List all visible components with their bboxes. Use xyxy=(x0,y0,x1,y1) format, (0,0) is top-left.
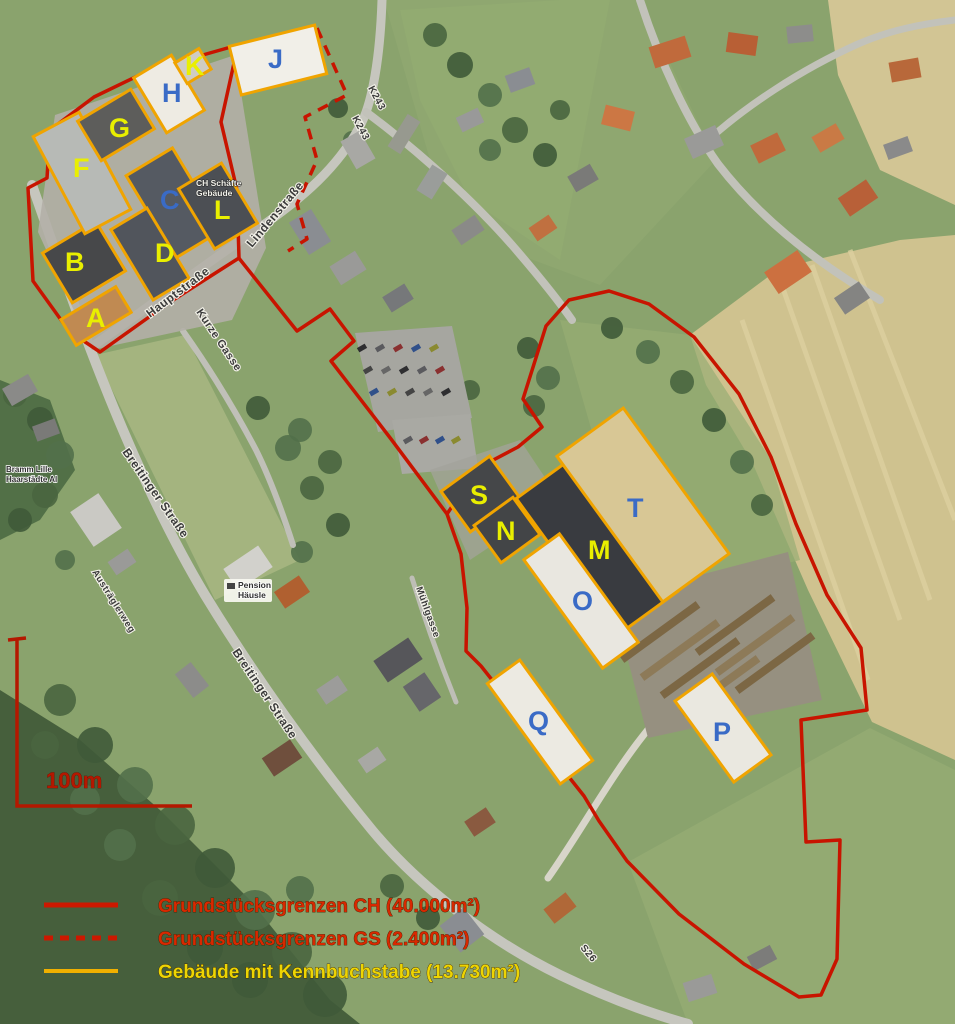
tree xyxy=(300,476,324,500)
poi-text: Bramm Lille xyxy=(6,465,52,474)
tree xyxy=(77,727,113,763)
tree xyxy=(246,396,270,420)
legend-label-ch: Grundstücksgrenzen CH (40.000m²) xyxy=(158,896,480,917)
tree xyxy=(55,550,75,570)
tree xyxy=(8,508,32,532)
tree xyxy=(536,366,560,390)
building-label-Q: Q xyxy=(528,706,549,736)
legend-label-gs: Grundstücksgrenzen GS (2.400m²) xyxy=(158,929,469,950)
poi-text: Haarstädte Al xyxy=(6,475,57,484)
scale-label: 100m xyxy=(46,768,102,793)
building-label-T: T xyxy=(627,493,644,523)
tree xyxy=(533,143,557,167)
tree xyxy=(155,805,195,845)
tree xyxy=(44,684,76,716)
aerial-map: ABCDFGHJKLSNMOTQP 100m HauptstraßeLinden… xyxy=(0,0,955,1024)
poi-text: Pension xyxy=(238,580,271,590)
building-label-F: F xyxy=(73,153,90,183)
house-roof xyxy=(786,24,814,44)
building-label-B: B xyxy=(65,247,85,277)
tree xyxy=(104,829,136,861)
tree xyxy=(550,100,570,120)
building-label-J: J xyxy=(268,44,283,74)
tree xyxy=(479,139,501,161)
legend-label-buildings: Gebäude mit Kennbuchstabe (13.730m²) xyxy=(158,962,520,983)
building-label-H: H xyxy=(162,78,182,108)
building-label-A: A xyxy=(86,303,106,333)
tree xyxy=(751,494,773,516)
tree xyxy=(380,874,404,898)
building-label-C: C xyxy=(160,185,180,215)
building-label-K: K xyxy=(185,51,205,81)
tree xyxy=(31,731,59,759)
building-label-L: L xyxy=(214,195,231,225)
house-roof xyxy=(726,32,758,56)
building-label-S: S xyxy=(470,480,488,510)
tree xyxy=(32,482,58,508)
tree xyxy=(447,52,473,78)
tree xyxy=(636,340,660,364)
poi-label: Bramm LilleHaarstädte Al xyxy=(6,465,57,484)
tree xyxy=(702,408,726,432)
tree xyxy=(478,83,502,107)
building-label-G: G xyxy=(109,113,130,143)
tree xyxy=(423,23,447,47)
tree xyxy=(288,418,312,442)
building-label-N: N xyxy=(496,516,516,546)
tree xyxy=(195,848,235,888)
building-label-D: D xyxy=(155,238,175,268)
building-label-P: P xyxy=(713,717,731,747)
tree xyxy=(326,513,350,537)
tree xyxy=(117,767,153,803)
poi-text: Häusle xyxy=(238,590,266,600)
poi-icon xyxy=(227,583,235,589)
building-label-O: O xyxy=(572,586,593,616)
tree xyxy=(730,450,754,474)
tree xyxy=(318,450,342,474)
tree xyxy=(601,317,623,339)
tree xyxy=(502,117,528,143)
tree xyxy=(670,370,694,394)
poi-text: Gebäude xyxy=(196,188,233,198)
poi-text: CH Schäfte xyxy=(196,178,242,188)
building-label-M: M xyxy=(588,535,611,565)
poi-label: PensionHäusle xyxy=(224,579,272,602)
map-canvas: ABCDFGHJKLSNMOTQP 100m HauptstraßeLinden… xyxy=(0,0,955,1024)
